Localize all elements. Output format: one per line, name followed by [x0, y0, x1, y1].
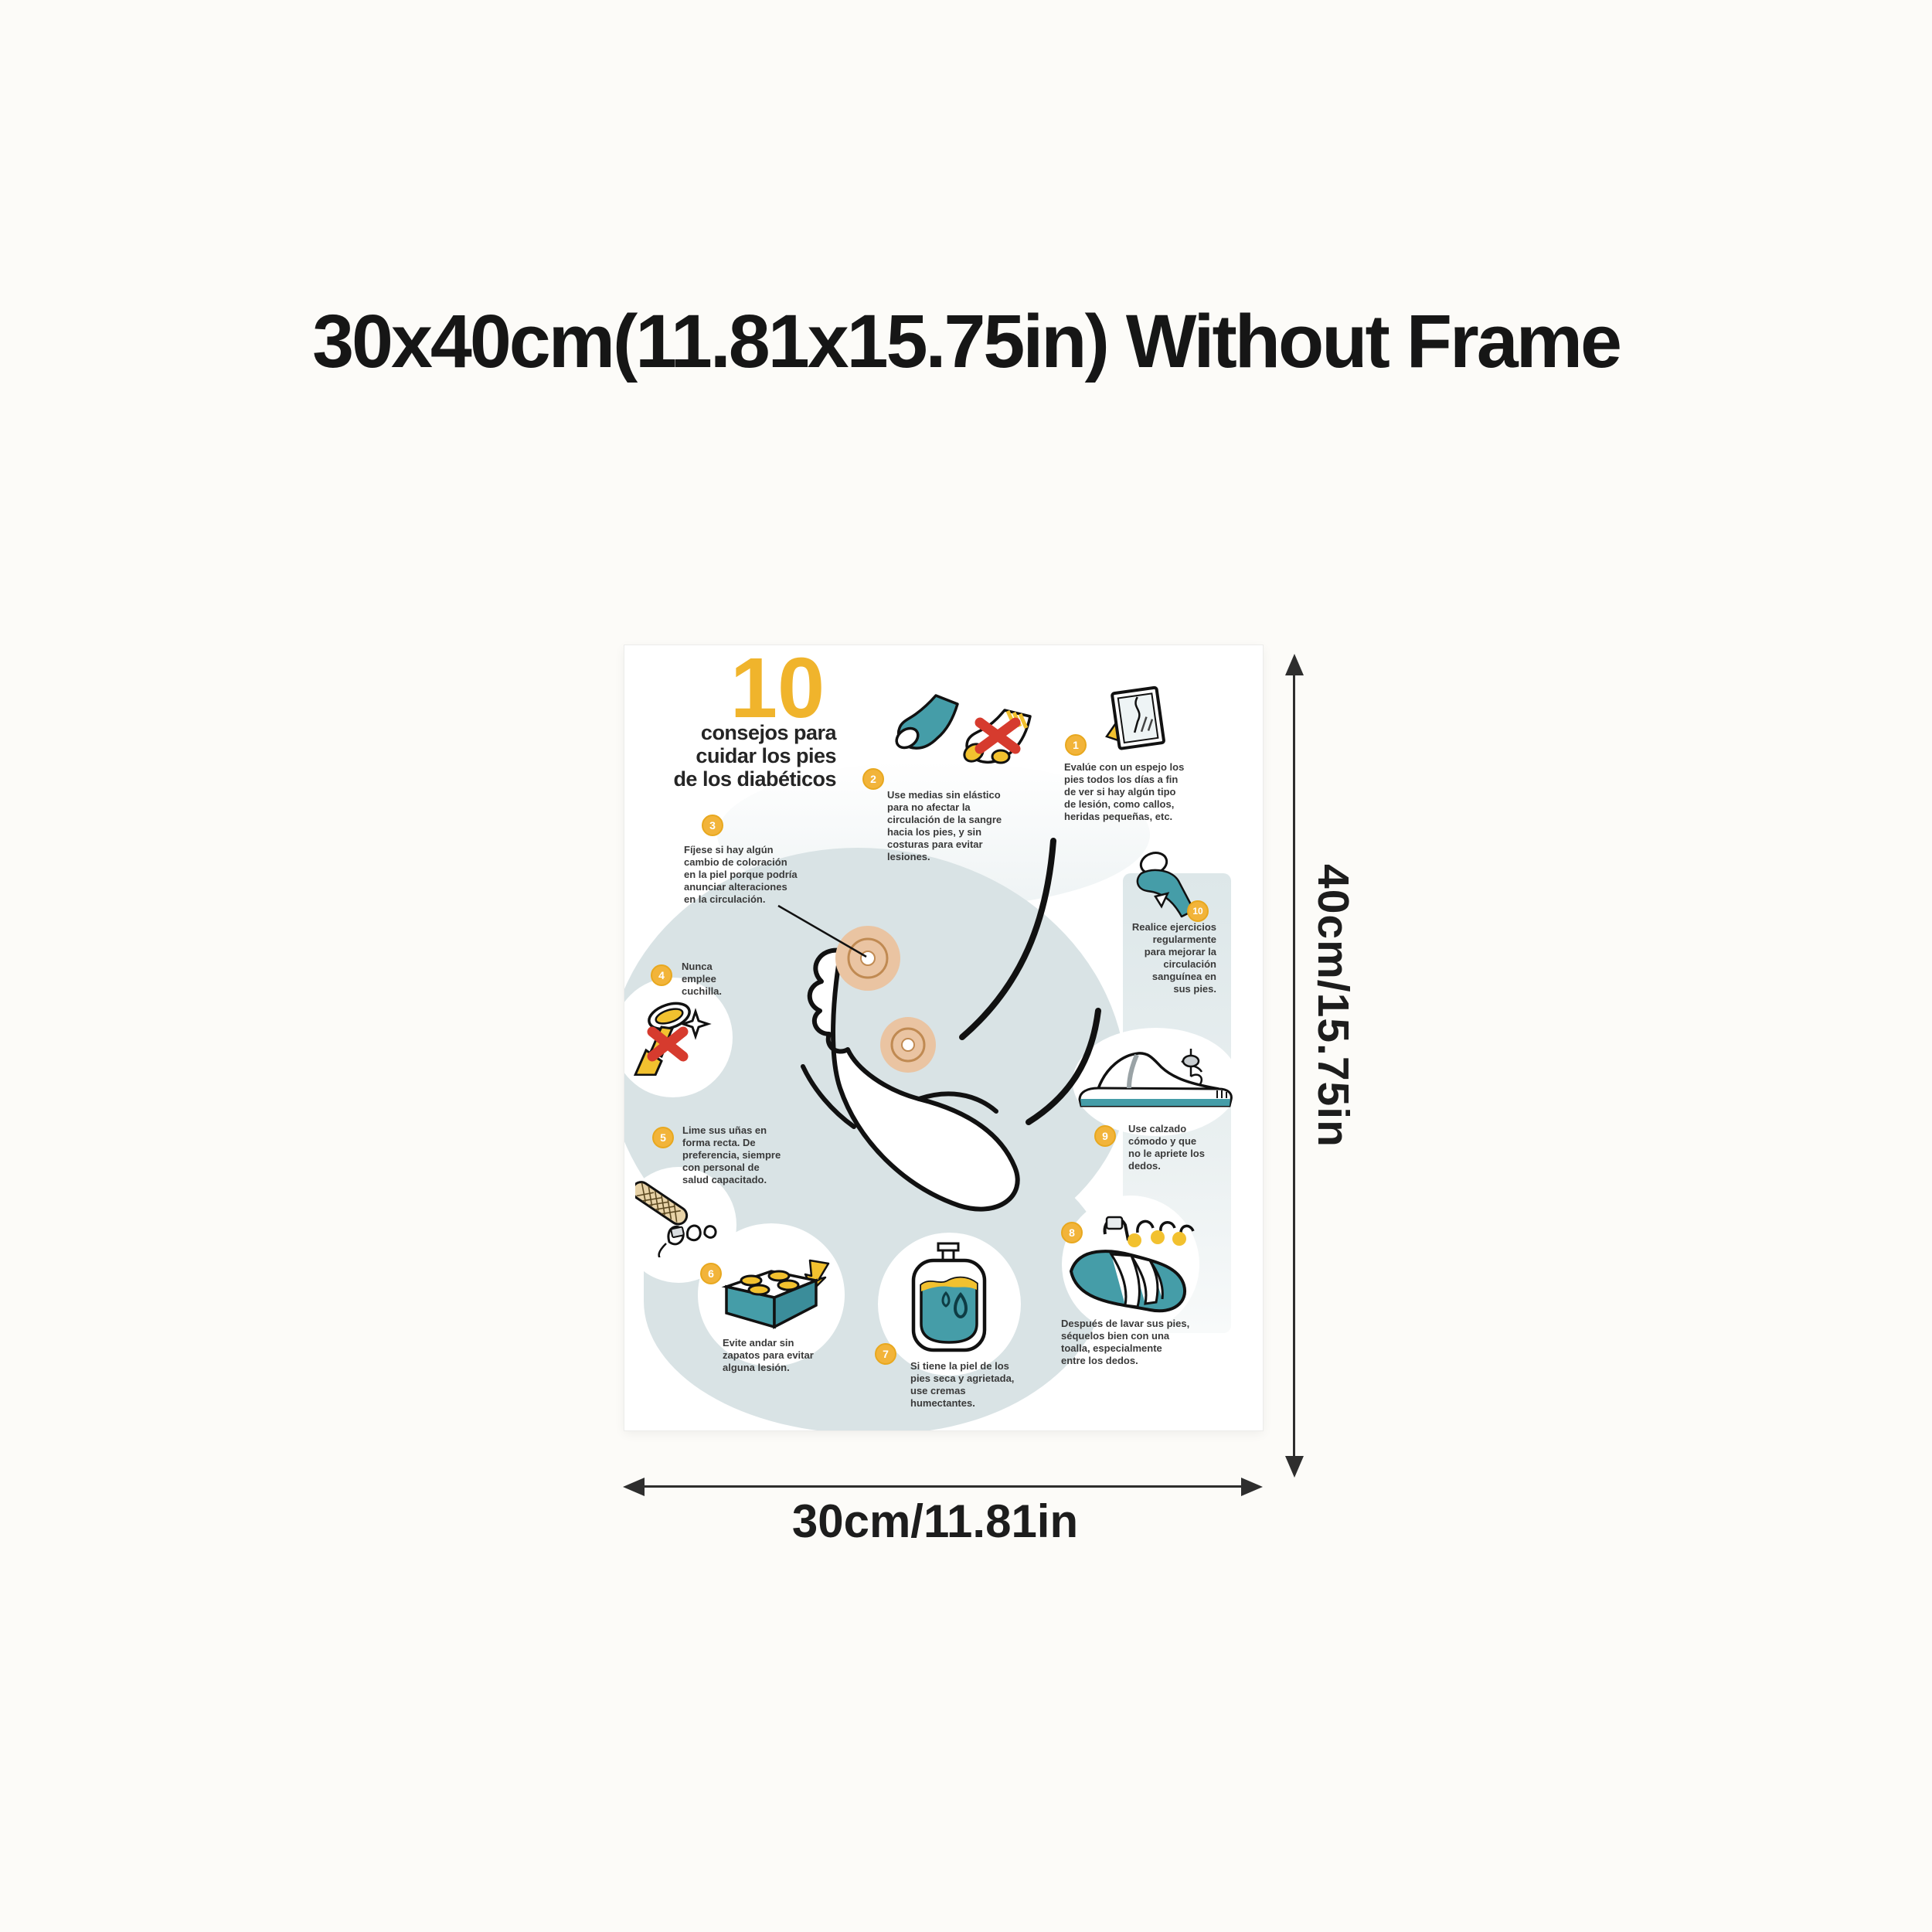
teal-sock-icon — [891, 692, 959, 766]
height-dimension-line — [1293, 671, 1295, 1459]
width-dimension-label: 30cm/11.81in — [773, 1495, 1097, 1548]
shoe-icon — [1075, 1044, 1239, 1118]
crossed-sock-icon — [957, 706, 1039, 780]
tip-text: Evalúe con un espejo los pies todos los … — [1064, 761, 1234, 823]
tip-number-badge: 4 — [651, 964, 672, 986]
arrow-right-icon — [1241, 1478, 1263, 1496]
nail-file-icon — [635, 1180, 739, 1257]
tip-text: Si tiene la piel de los pies seca y agri… — [910, 1360, 1073, 1410]
arrow-down-icon — [1285, 1456, 1304, 1478]
tip-text: Nunca emplee cuchilla. — [682, 961, 759, 998]
tip-number-badge: 2 — [862, 768, 884, 790]
callus-spot — [835, 926, 900, 991]
razor-icon — [631, 995, 714, 1076]
height-dimension-label: 40cm/15.75in — [1308, 864, 1359, 1148]
page-title: 30x40cm(11.81x15.75in) Without Frame — [0, 298, 1932, 385]
tip-number-badge: 6 — [700, 1263, 722, 1284]
mirror-icon — [1094, 685, 1175, 757]
towel-icon — [1057, 1206, 1208, 1322]
arrow-left-icon — [623, 1478, 645, 1496]
tip-text: Use medias sin elástico para no afectar … — [887, 789, 1057, 863]
tip-text: Realice ejercicios regularmente para mej… — [1088, 921, 1216, 995]
tip-number-badge: 9 — [1094, 1125, 1116, 1147]
tip-text: Evite andar sin zapatos para evitar algu… — [723, 1337, 869, 1374]
tip-text: Use calzado cómodo y que no le apriete l… — [1128, 1123, 1256, 1172]
tip-text: Lime sus uñas en forma recta. De prefere… — [682, 1124, 837, 1186]
poster-heading: consejos para cuidar los pies de los dia… — [646, 721, 836, 791]
tip-number-badge: 1 — [1065, 734, 1087, 756]
tip-text: Después de lavar sus pies, séquelos bien… — [1061, 1318, 1250, 1367]
callus-spot — [880, 1017, 936, 1073]
tip-number-badge: 7 — [875, 1343, 896, 1365]
poster-image: 10 consejos para cuidar los pies de los … — [624, 645, 1263, 1430]
tip-number-badge: 3 — [702, 815, 723, 836]
tip-text: Fíjese si hay algún cambio de coloración… — [684, 844, 854, 906]
lotion-icon — [900, 1242, 998, 1356]
tip-number-badge: 5 — [652, 1127, 674, 1148]
width-dimension-line — [645, 1485, 1241, 1488]
tip-number-badge: 10 — [1187, 900, 1209, 922]
tip-number-badge: 8 — [1061, 1222, 1083, 1243]
lego-brick-icon — [711, 1256, 832, 1336]
arrow-up-icon — [1285, 654, 1304, 675]
